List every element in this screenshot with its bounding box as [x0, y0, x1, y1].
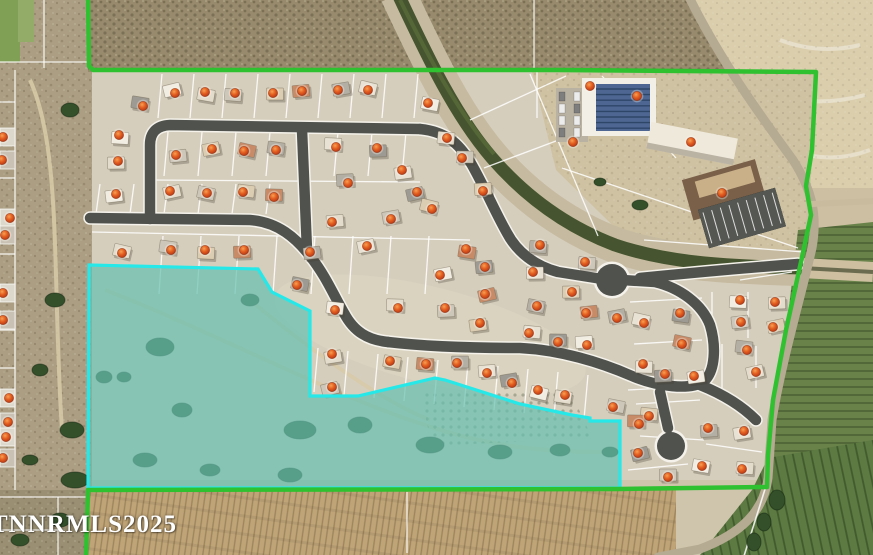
- map-marker[interactable]: [385, 213, 398, 226]
- map-marker[interactable]: [420, 358, 433, 371]
- map-marker[interactable]: [326, 216, 339, 229]
- map-marker[interactable]: [481, 367, 494, 380]
- map-marker[interactable]: [441, 132, 454, 145]
- map-marker[interactable]: [110, 188, 123, 201]
- map-marker[interactable]: [531, 300, 544, 313]
- map-marker[interactable]: [206, 143, 219, 156]
- map-marker[interactable]: [4, 212, 17, 225]
- map-marker[interactable]: [267, 87, 280, 100]
- map-marker[interactable]: [426, 203, 439, 216]
- map-marker[interactable]: [199, 244, 212, 257]
- map-marker[interactable]: [342, 177, 355, 190]
- map-marker[interactable]: [434, 269, 447, 282]
- map-marker[interactable]: [559, 389, 572, 402]
- map-marker[interactable]: [296, 85, 309, 98]
- map-marker[interactable]: [460, 243, 473, 256]
- map-marker[interactable]: [527, 266, 540, 279]
- map-marker[interactable]: [199, 86, 212, 99]
- map-marker[interactable]: [611, 312, 624, 325]
- map-marker[interactable]: [685, 136, 698, 149]
- map-marker[interactable]: [451, 357, 464, 370]
- map-marker[interactable]: [332, 84, 345, 97]
- map-marker[interactable]: [769, 296, 782, 309]
- map-marker[interactable]: [371, 142, 384, 155]
- map-marker[interactable]: [238, 244, 251, 257]
- map-marker[interactable]: [116, 247, 129, 260]
- map-marker[interactable]: [201, 187, 214, 200]
- map-marker[interactable]: [392, 302, 405, 315]
- map-marker[interactable]: [456, 152, 469, 165]
- map-marker[interactable]: [688, 370, 701, 383]
- map-marker[interactable]: [633, 418, 646, 431]
- map-marker[interactable]: [750, 366, 763, 379]
- map-marker[interactable]: [532, 384, 545, 397]
- map-marker[interactable]: [767, 321, 780, 334]
- map-marker[interactable]: [169, 87, 182, 100]
- aerial-map[interactable]: TNNRMLS2025: [0, 0, 873, 555]
- map-marker[interactable]: [411, 186, 424, 199]
- map-marker[interactable]: [268, 191, 281, 204]
- map-marker[interactable]: [330, 141, 343, 154]
- map-marker[interactable]: [659, 368, 672, 381]
- map-marker[interactable]: [638, 317, 651, 330]
- map-marker[interactable]: [736, 463, 749, 476]
- map-marker[interactable]: [361, 240, 374, 253]
- map-marker[interactable]: [566, 286, 579, 299]
- map-marker[interactable]: [439, 302, 452, 315]
- map-marker[interactable]: [632, 447, 645, 460]
- map-marker[interactable]: [702, 422, 715, 435]
- map-marker[interactable]: [580, 307, 593, 320]
- map-marker[interactable]: [3, 392, 16, 405]
- map-marker[interactable]: [674, 307, 687, 320]
- map-marker[interactable]: [631, 90, 644, 103]
- map-marker[interactable]: [422, 97, 435, 110]
- map-marker[interactable]: [579, 256, 592, 269]
- map-marker[interactable]: [170, 149, 183, 162]
- map-marker[interactable]: [734, 294, 747, 307]
- map-marker[interactable]: [735, 316, 748, 329]
- map-marker[interactable]: [506, 377, 519, 390]
- map-marker[interactable]: [326, 348, 339, 361]
- map-marker[interactable]: [479, 288, 492, 301]
- map-marker[interactable]: [326, 381, 339, 394]
- map-marker[interactable]: [2, 416, 15, 429]
- solar-panels: [596, 84, 650, 131]
- map-marker[interactable]: [304, 246, 317, 259]
- map-marker[interactable]: [112, 155, 125, 168]
- map-marker[interactable]: [270, 144, 283, 157]
- map-marker[interactable]: [238, 145, 251, 158]
- map-marker[interactable]: [696, 460, 709, 473]
- map-marker[interactable]: [607, 401, 620, 414]
- map-marker[interactable]: [329, 304, 342, 317]
- map-marker[interactable]: [384, 355, 397, 368]
- map-graphics: [0, 0, 873, 555]
- map-marker[interactable]: [477, 185, 490, 198]
- map-marker[interactable]: [229, 87, 242, 100]
- map-marker[interactable]: [164, 185, 177, 198]
- watermark: TNNRMLS2025: [0, 511, 177, 539]
- map-marker[interactable]: [0, 431, 12, 444]
- map-marker[interactable]: [738, 425, 751, 438]
- map-marker[interactable]: [567, 136, 580, 149]
- map-marker[interactable]: [716, 187, 729, 200]
- map-marker[interactable]: [137, 100, 150, 113]
- map-marker[interactable]: [237, 186, 250, 199]
- map-marker[interactable]: [396, 164, 409, 177]
- map-marker[interactable]: [643, 410, 656, 423]
- map-marker[interactable]: [581, 339, 594, 352]
- map-marker[interactable]: [662, 471, 675, 484]
- map-marker[interactable]: [474, 317, 487, 330]
- map-marker[interactable]: [584, 80, 597, 93]
- map-marker[interactable]: [534, 239, 547, 252]
- map-marker[interactable]: [291, 279, 304, 292]
- map-marker[interactable]: [637, 358, 650, 371]
- map-marker[interactable]: [362, 84, 375, 97]
- map-marker[interactable]: [479, 261, 492, 274]
- map-marker[interactable]: [552, 336, 565, 349]
- map-marker[interactable]: [741, 344, 754, 357]
- map-marker[interactable]: [165, 244, 178, 257]
- map-marker[interactable]: [523, 327, 536, 340]
- map-marker[interactable]: [676, 338, 689, 351]
- map-marker[interactable]: [113, 129, 126, 142]
